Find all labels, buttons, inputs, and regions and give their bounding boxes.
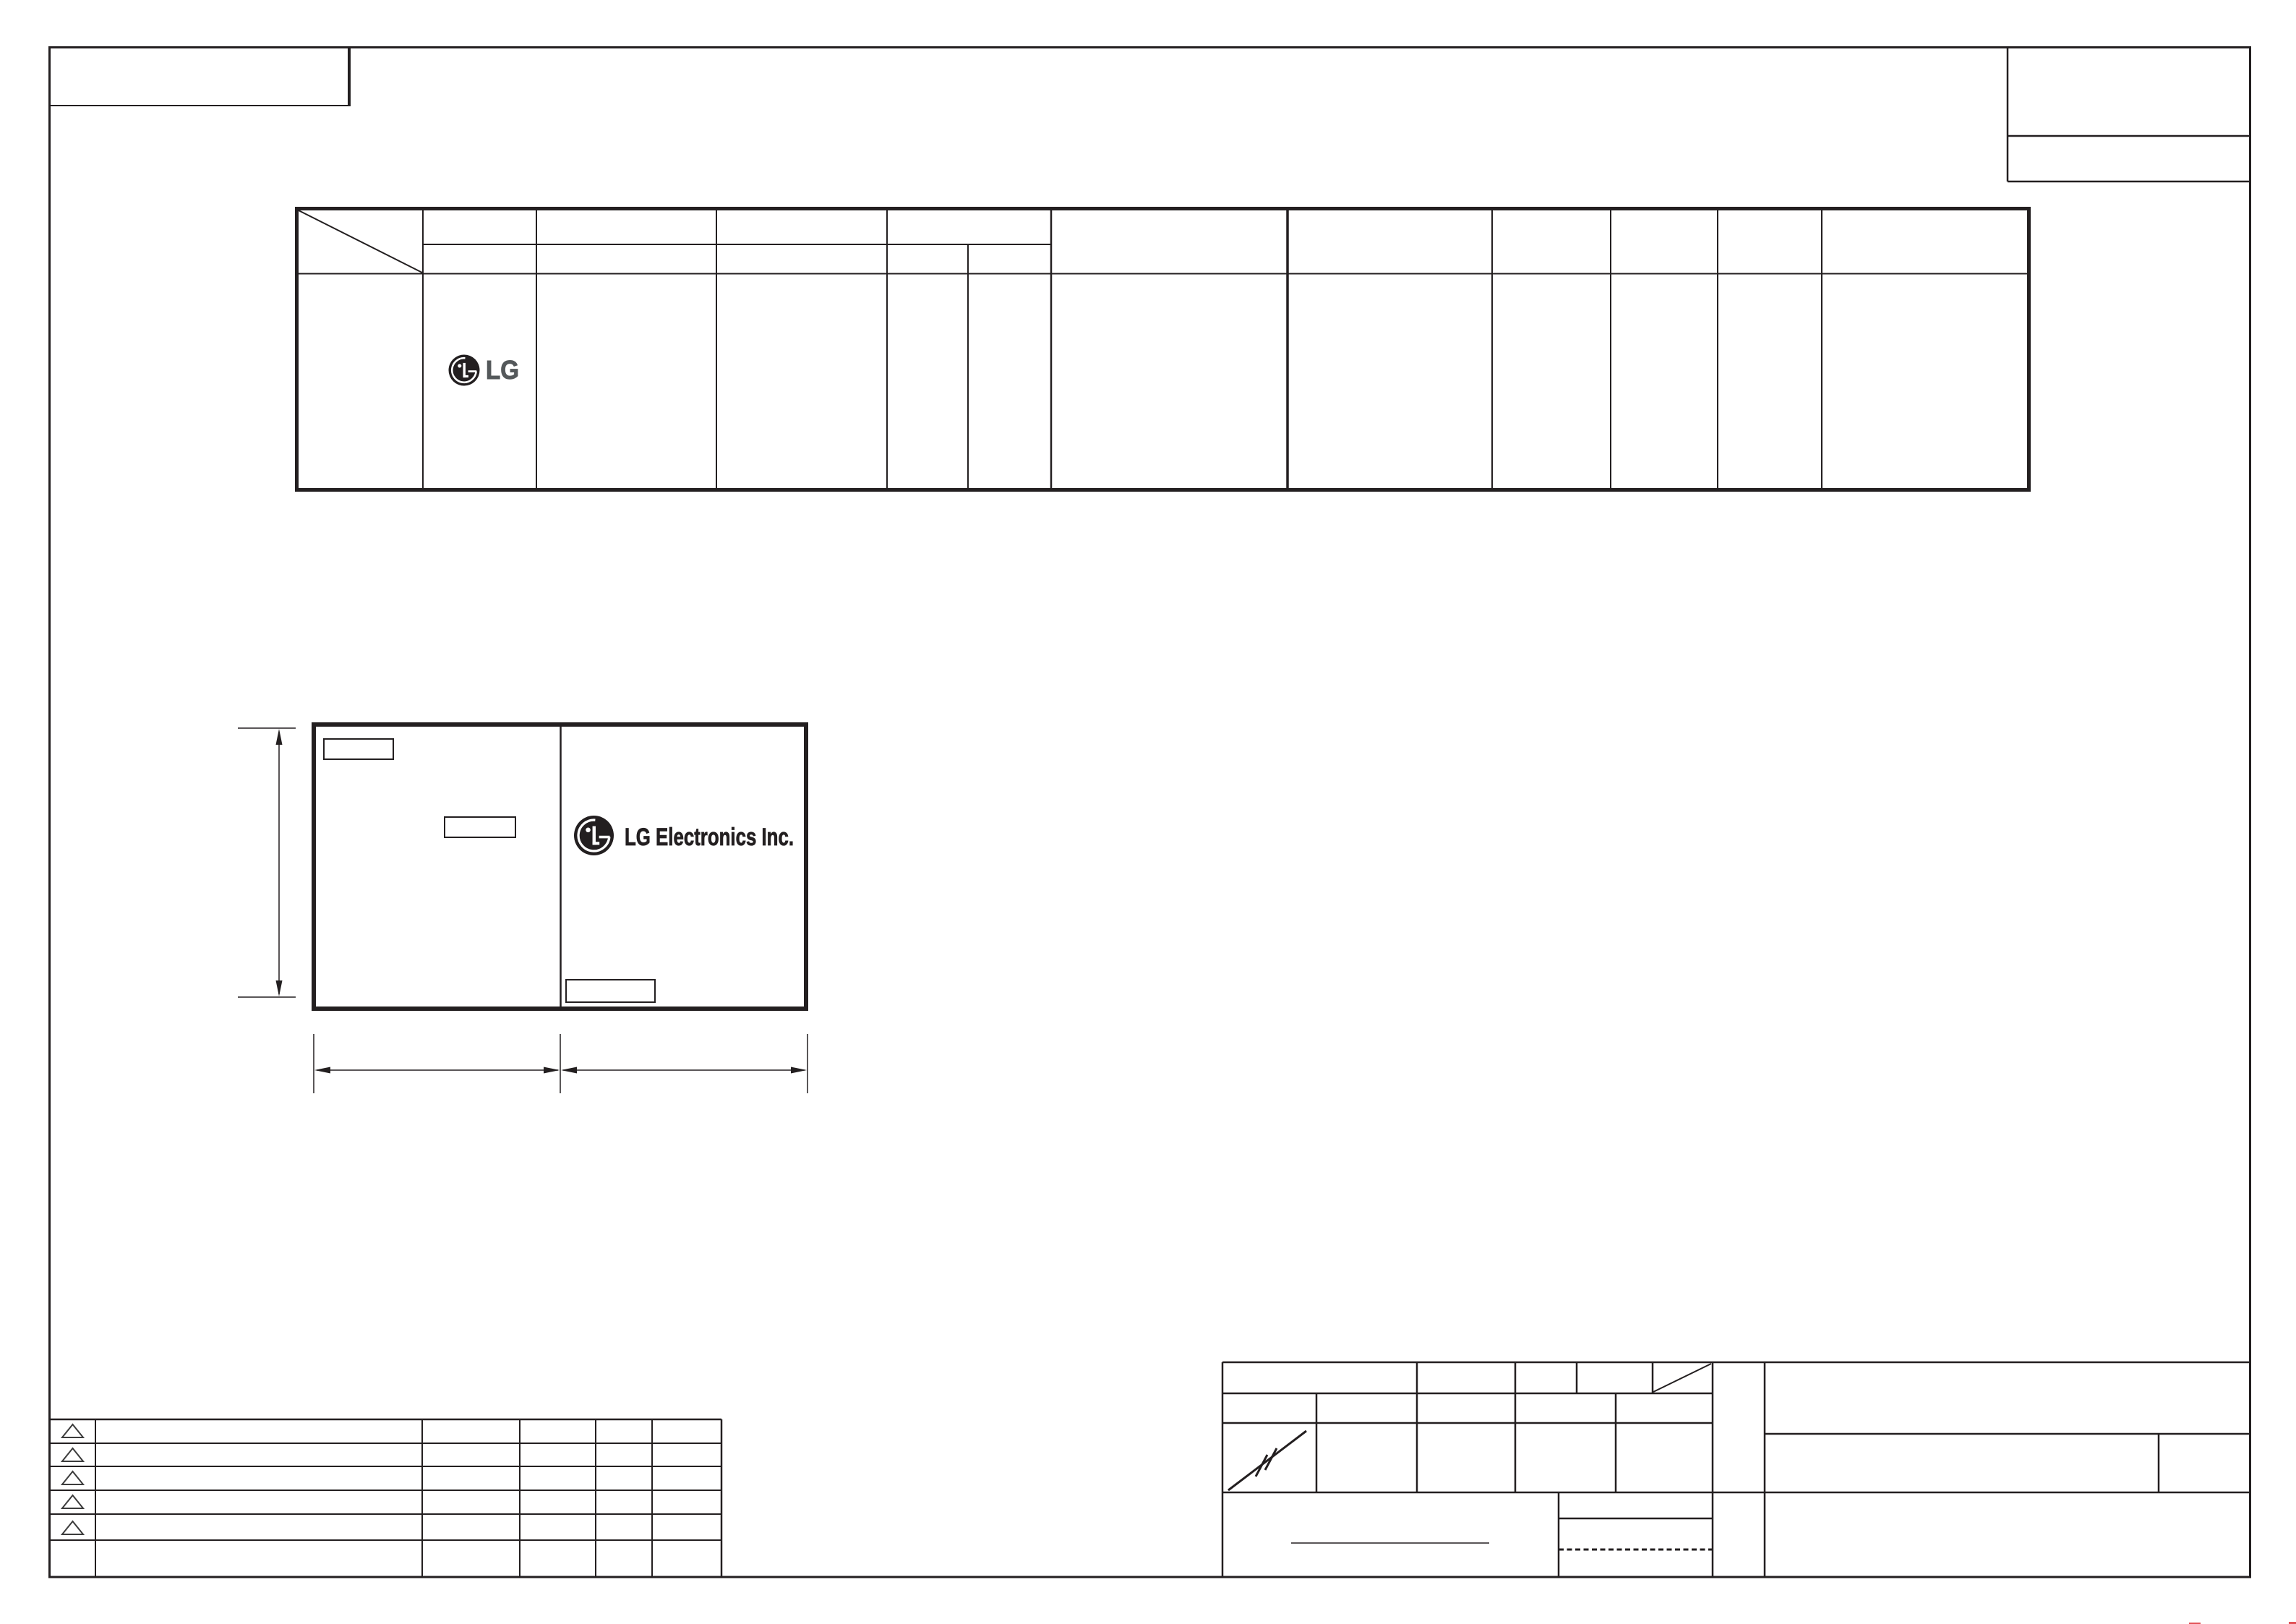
svg-text:LG Electronics Inc.: LG Electronics Inc. — [625, 824, 794, 851]
svg-text:LG: LG — [486, 355, 519, 385]
